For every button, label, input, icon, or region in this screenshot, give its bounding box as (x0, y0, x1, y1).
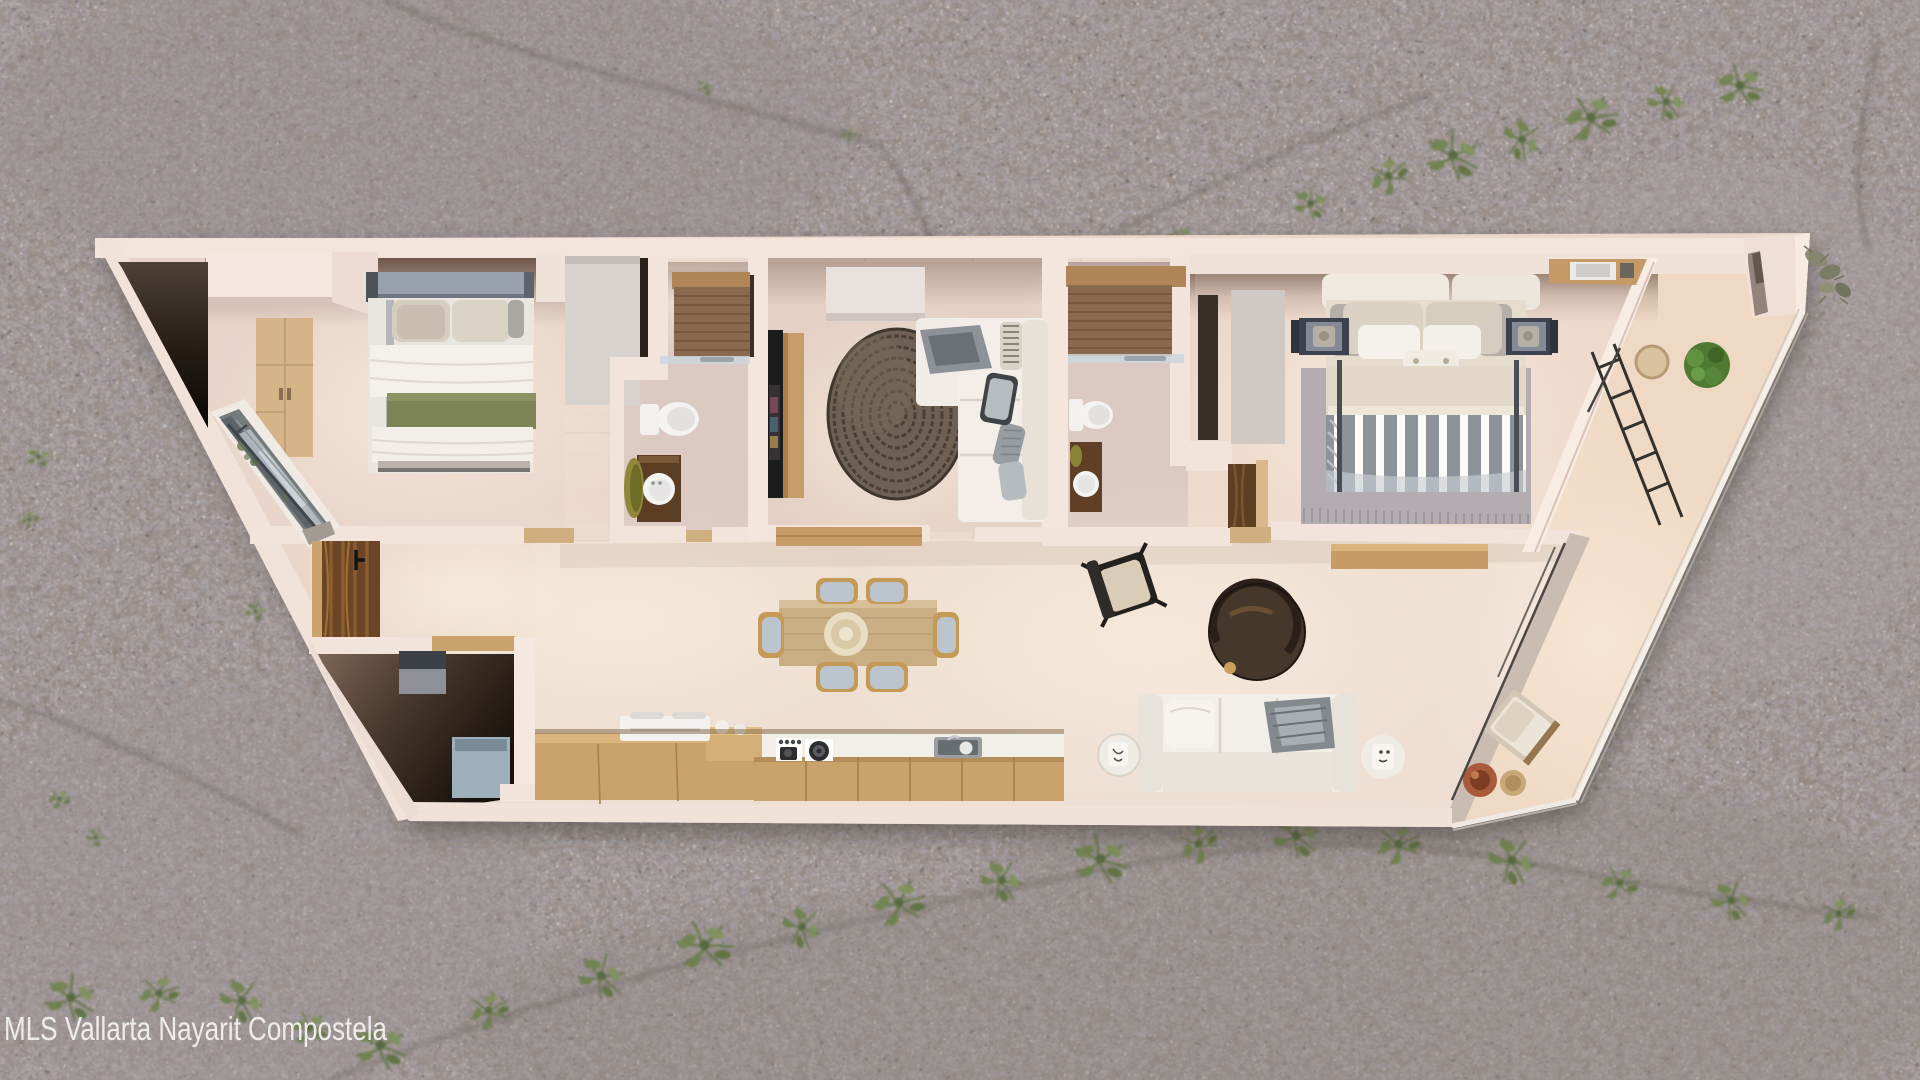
svg-text:MLS Vallarta Nayarit Compostel: MLS Vallarta Nayarit Compostela (4, 1010, 388, 1047)
